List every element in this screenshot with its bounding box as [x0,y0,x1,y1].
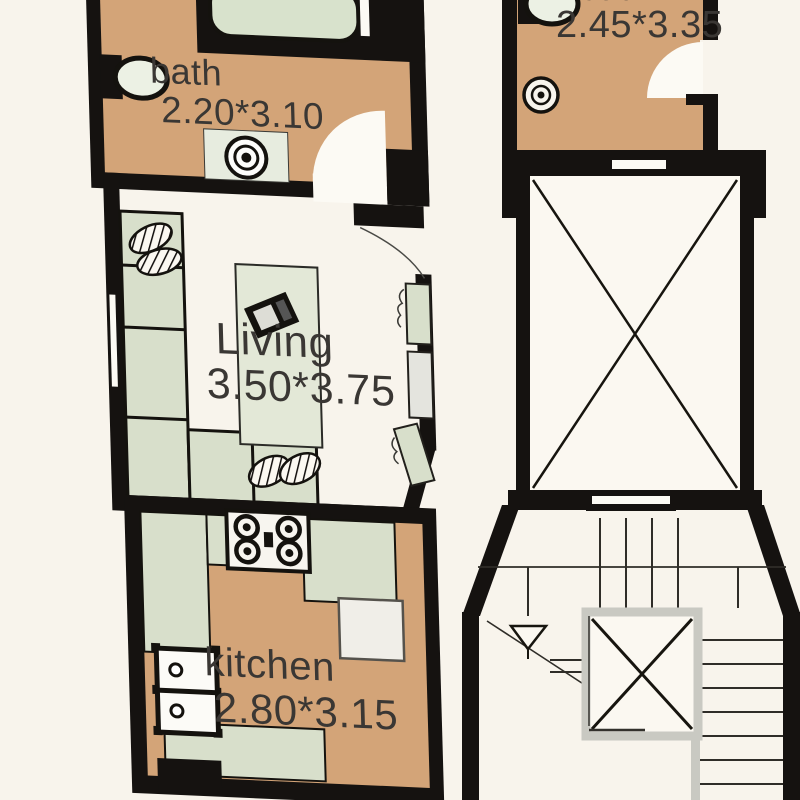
door-arc [360,228,424,279]
elevator-door-bottom [592,496,670,504]
bath-left-corner-wall [386,149,430,207]
elevator-door-tab [586,504,676,511]
stair-treads-top [600,518,678,612]
floor-plan-drawing [0,0,800,800]
right-unit [462,0,800,800]
floor-drain-icon [204,129,289,183]
door-jamb [686,94,718,105]
stair-right-wall [783,612,800,800]
elevator-door-tab [606,151,672,160]
bathtub-gap [360,0,370,36]
stove-icon [226,510,310,572]
plant-icon [397,289,405,327]
elevator-door-top [612,160,666,169]
floor-drain-icon [524,78,558,112]
toilet-icon [100,54,168,101]
toilet-icon [518,0,578,24]
bath-right-room [502,0,718,166]
elevator-left-wall [516,176,530,504]
bath-left-door-opening [313,174,388,205]
living-top-wall-stub [353,203,424,228]
rug-table [235,264,322,448]
living-room [103,172,439,526]
appliance [339,598,405,661]
left-unit [85,0,446,800]
stair-stringer [691,732,700,800]
stairs-direction-arrow [511,626,546,659]
elevator-right-wall [740,176,754,504]
stair-hall [462,505,800,800]
bath-left-room [85,0,429,207]
floor-plan: bath 2.20*3.10 Living 3.50*3.75 kitchen … [0,0,800,800]
sink-icon [151,643,223,738]
stair-left-diagonal-wall [462,505,520,616]
bathtub-icon [209,0,358,42]
stair-treads-right [700,640,783,784]
stair-right-diagonal-wall [746,505,800,616]
elevator-shaft [502,150,766,511]
tv-console [382,282,436,489]
kitchen-wall-block [157,758,222,795]
stair-left-wall [462,612,479,800]
kitchen-room [124,495,444,800]
